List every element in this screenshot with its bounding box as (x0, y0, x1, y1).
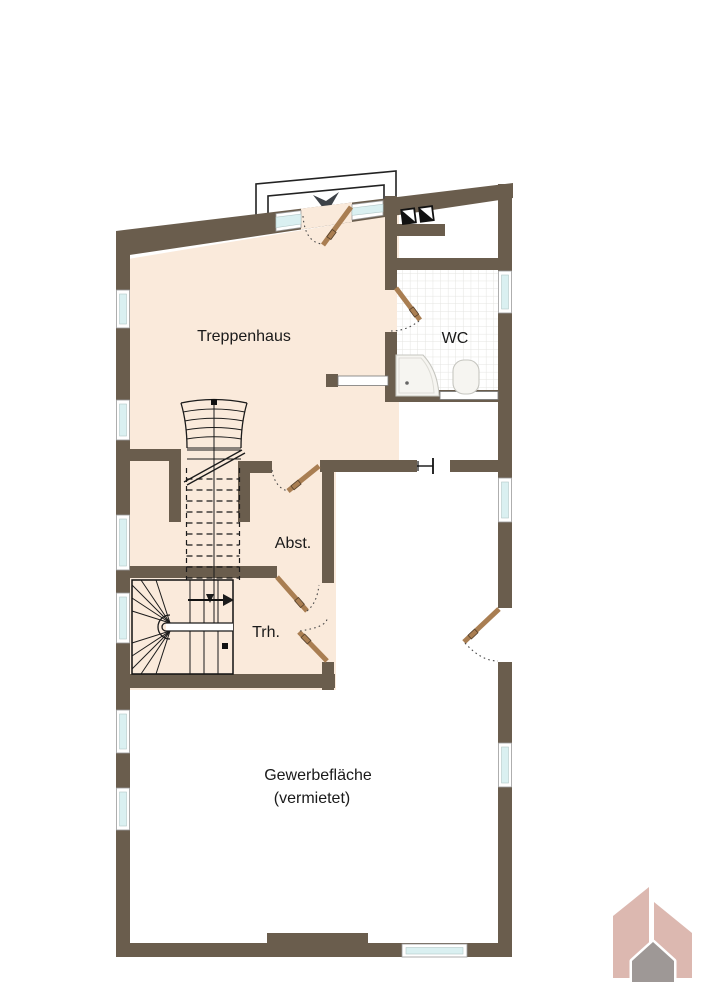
company-logo-icon (613, 887, 692, 982)
shaft-wall (385, 224, 445, 236)
window (117, 788, 130, 830)
window (117, 593, 130, 643)
room-label-gewerbeflaeche: Gewerbefläche (264, 767, 372, 784)
window (499, 271, 512, 313)
bathtub-drain (405, 381, 409, 385)
window (117, 400, 130, 440)
passage-opening-symbol (417, 458, 433, 474)
abst-bottom-wall (128, 566, 277, 578)
radiator-stub (326, 374, 338, 387)
wc-left-wall-upper (385, 196, 397, 290)
stair-shaft-left-wall (169, 449, 181, 522)
floor-areas (128, 214, 498, 690)
window (499, 743, 512, 787)
abst-right-wall (322, 460, 334, 583)
room-label-gewerbeflaeche-sub: (vermietet) (274, 790, 350, 807)
window (499, 478, 512, 522)
exterior-right-door-swing (464, 609, 499, 661)
floor-plan-svg: Treppenhaus WC Abst. Trh. Gewerbefläche … (0, 0, 706, 1000)
abst-top-wall-left (238, 461, 272, 473)
corridor-bottom-wall-left (320, 460, 417, 472)
room-label-trh: Trh. (252, 624, 280, 641)
window (402, 944, 467, 957)
room-label-wc: WC (442, 330, 469, 347)
corridor-bottom-wall-right (450, 460, 498, 472)
room-label-treppenhaus: Treppenhaus (197, 328, 291, 345)
window (117, 515, 130, 570)
window (117, 710, 130, 753)
trh-bottom-wall (128, 674, 335, 688)
newel-dot (222, 643, 228, 649)
bottom-wall-pillar (267, 933, 368, 947)
room-label-abst: Abst. (275, 535, 311, 552)
window (117, 290, 130, 328)
toilet (453, 360, 479, 394)
wc-top-wall (397, 258, 498, 270)
radiator-treppenhaus (338, 376, 388, 386)
floor-plan-page: Treppenhaus WC Abst. Trh. Gewerbefläche … (0, 0, 706, 1000)
window (276, 211, 301, 232)
